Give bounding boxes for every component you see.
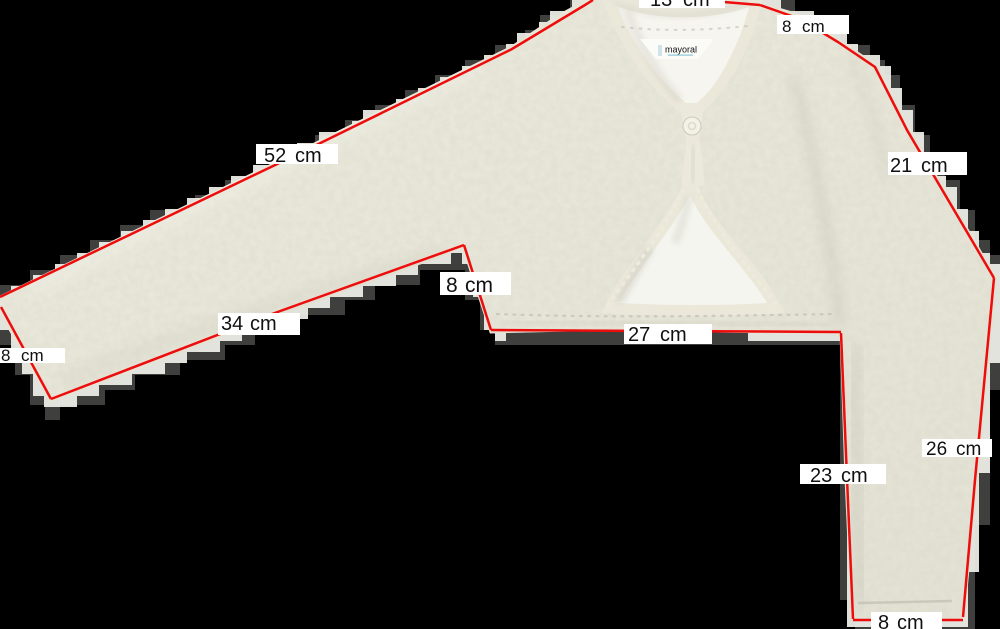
svg-text:cm: cm [841,465,868,487]
svg-text:26: 26 [926,439,947,460]
svg-text:cm: cm [21,346,44,365]
svg-text:cm: cm [897,612,924,629]
svg-text:8: 8 [782,17,791,36]
svg-text:13: 13 [650,0,672,11]
svg-text:cm: cm [802,17,825,36]
svg-text:21: 21 [890,155,912,177]
svg-text:cm: cm [921,155,948,177]
svg-text:23: 23 [810,465,832,487]
svg-text:cm: cm [956,439,981,460]
svg-text:8: 8 [1,346,10,365]
svg-text:27: 27 [628,324,650,346]
svg-text:34: 34 [221,313,243,335]
svg-text:mayoral: mayoral [665,45,697,55]
svg-text:cm: cm [465,274,493,297]
svg-text:cm: cm [295,145,322,167]
svg-text:8: 8 [878,612,889,629]
svg-text:52: 52 [264,145,286,167]
svg-text:cm: cm [250,313,277,335]
svg-text:cm: cm [660,324,687,346]
svg-text:8: 8 [446,274,458,297]
svg-text:cm: cm [683,0,710,11]
